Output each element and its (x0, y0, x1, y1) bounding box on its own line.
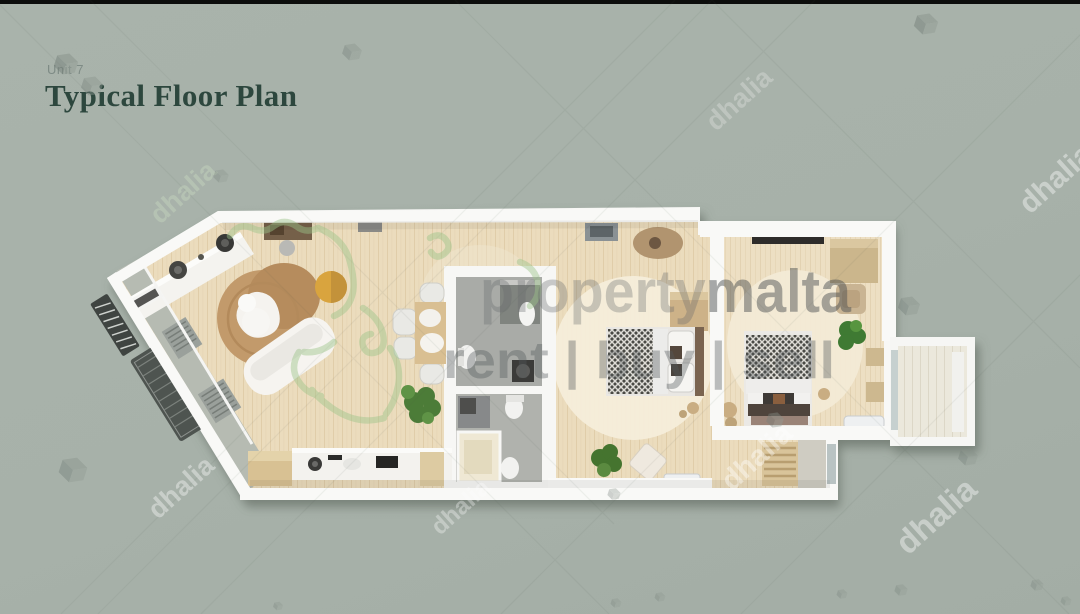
svg-text:dhalia: dhalia (142, 449, 221, 524)
svg-text:propertymalta: propertymalta (480, 258, 852, 325)
svg-text:dhalia: dhalia (700, 61, 779, 136)
svg-text:dhalia: dhalia (144, 154, 223, 229)
svg-text:rent | buy | sell: rent | buy | sell (443, 332, 835, 390)
svg-text:dhalia: dhalia (1013, 137, 1080, 220)
svg-text:dhalia: dhalia (426, 474, 496, 541)
svg-text:dhalia: dhalia (715, 417, 799, 497)
